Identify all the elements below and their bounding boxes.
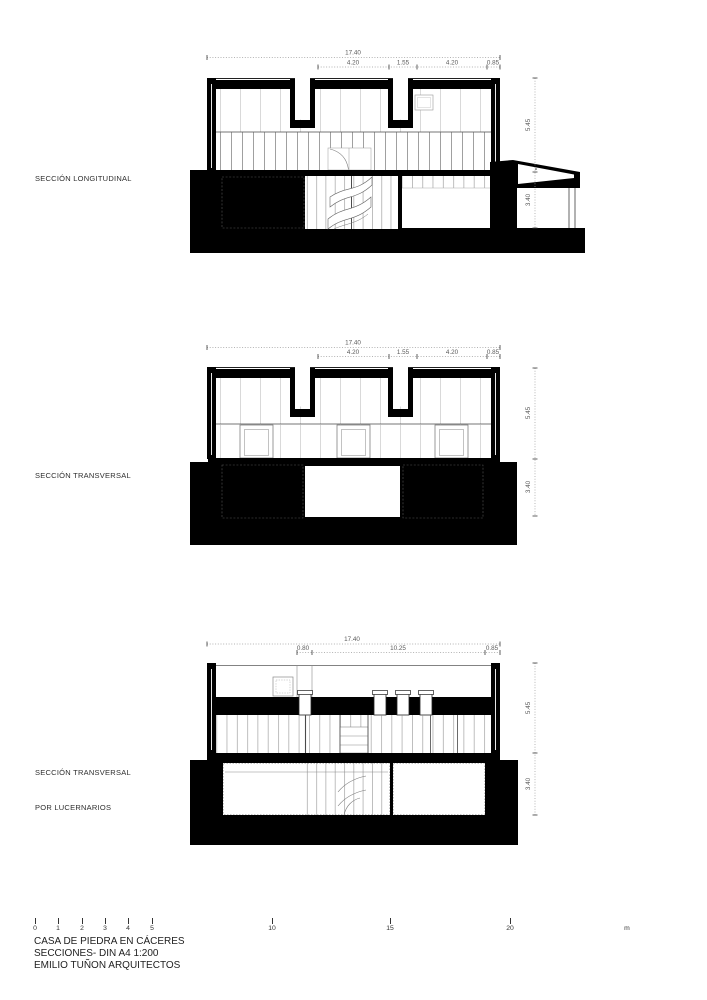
basement-room-right (402, 176, 490, 228)
roof-slab (216, 369, 491, 378)
scale-tick (152, 918, 153, 924)
skylight-cylinder-1 (298, 691, 313, 716)
scale-tick (510, 918, 511, 924)
roof-channel-1 (290, 78, 315, 129)
stair-well (305, 176, 398, 229)
channel-slot (393, 78, 408, 120)
dim-label: 17.40 (345, 50, 361, 57)
dimension-row-total: 17.40 (207, 636, 500, 647)
skylight-cylinder-4 (419, 691, 434, 716)
sections-drawing-svg: 17.40 4.20 1.55 4.20 0.85 (0, 0, 707, 1000)
channel-base (290, 409, 315, 417)
scale-tick (35, 918, 36, 924)
architect-name: EMILIO TUÑON ARQUITECTOS (34, 960, 185, 972)
dim-label: 4.20 (446, 60, 459, 67)
skylight-box (273, 677, 293, 696)
roof-slab (216, 80, 491, 89)
dim-label: 1.55 (397, 349, 410, 356)
dimension-row-total: 17.40 (207, 50, 500, 61)
dim-label: 0.85 (487, 60, 500, 67)
scale-unit-label: m (619, 925, 635, 932)
scale-tick-label: 15 (382, 925, 398, 932)
section-lucernarios-drawing: 17.40 0.80 10.25 0.85 (190, 636, 538, 845)
channel-base (290, 120, 315, 128)
foundation-extension (517, 228, 585, 253)
wall-panel-hatch (216, 378, 491, 424)
stair-zone-hatch (305, 763, 387, 815)
roof-slab (216, 697, 491, 715)
scale-tick-label: 0 (27, 925, 43, 932)
roof-channel-1 (290, 367, 315, 418)
scale-tick-label: 1 (50, 925, 66, 932)
scale-tick (105, 918, 106, 924)
project-title: CASA DE PIEDRA EN CÁCERES (34, 936, 185, 948)
dim-label: 3.40 (525, 480, 532, 493)
scale-tick (58, 918, 59, 924)
height-dimensions: 5.45 3.40 (525, 663, 538, 815)
roof-channel-2 (388, 367, 413, 418)
dim-label: 5.45 (525, 406, 532, 419)
dim-label: 3.40 (525, 777, 532, 790)
roof-channel-2 (388, 78, 413, 129)
scale-tick-label: 2 (74, 925, 90, 932)
right-wall (491, 78, 500, 172)
window-1 (240, 425, 273, 458)
height-dimensions: 5.45 3.40 (525, 78, 538, 228)
channel-base (388, 120, 413, 128)
scale-tick-label: 10 (264, 925, 280, 932)
channel-slot (295, 367, 310, 407)
drawing-sheet: SECCIÓN LONGITUDINAL SECCIÓN TRANSVERSAL… (0, 0, 707, 1000)
dim-label: 17.40 (344, 636, 360, 643)
dim-label: 4.20 (446, 349, 459, 356)
left-wall (207, 367, 216, 459)
facade-panel-hatch (216, 89, 491, 132)
scale-tick-label: 5 (144, 925, 160, 932)
dim-label: 5.45 (525, 701, 532, 714)
scale-tick-label: 3 (97, 925, 113, 932)
wall-detail-box (415, 95, 433, 110)
scale-tick-label: 20 (502, 925, 518, 932)
section-transversal-drawing: 17.40 4.20 1.55 4.20 0.85 (190, 340, 538, 546)
window-2 (337, 425, 370, 458)
dim-label: 4.20 (347, 349, 360, 356)
dim-label: 0.85 (487, 349, 500, 356)
scale-tick (272, 918, 273, 924)
right-wall (491, 367, 500, 459)
basement-room-left (223, 763, 390, 815)
scale-tick (128, 918, 129, 924)
title-block: CASA DE PIEDRA EN CÁCERES SECCIONES- DIN… (34, 936, 185, 971)
basement-hall (305, 466, 400, 517)
skylight-cylinder-3 (396, 691, 411, 716)
dim-label: 1.55 (397, 60, 410, 67)
scale-tick-label: 4 (120, 925, 136, 932)
section-longitudinal-drawing: 17.40 4.20 1.55 4.20 0.85 (190, 50, 585, 254)
dimension-row-sub: 0.80 10.25 0.85 (297, 645, 500, 655)
dim-label: 5.45 (525, 118, 532, 131)
scale-bar: 0 1 2 3 4 5 10 15 20 m (0, 916, 707, 936)
left-wall (207, 663, 216, 753)
entry-door (328, 148, 371, 170)
scale-tick (82, 918, 83, 924)
dim-label: 17.40 (345, 340, 361, 347)
scale-tick (390, 918, 391, 924)
dim-label: 3.40 (525, 193, 532, 206)
dim-label: 4.20 (347, 60, 360, 67)
dimension-row-sub: 4.20 1.55 4.20 0.85 (318, 349, 500, 359)
sheet-title: SECCIONES- DIN A4 1:200 (34, 948, 185, 960)
window-3 (435, 425, 468, 458)
ground-slab (207, 753, 500, 760)
dim-label: 0.80 (297, 645, 310, 652)
left-wall (207, 78, 216, 172)
dim-label: 10.25 (390, 645, 406, 652)
dim-label: 0.85 (486, 645, 499, 652)
basement-room-right (393, 763, 485, 815)
channel-base (388, 409, 413, 417)
height-dimensions: 5.45 3.40 (525, 368, 538, 516)
channel-slot (393, 367, 408, 407)
dimension-row-sub: 4.20 1.55 4.20 0.85 (318, 60, 500, 70)
right-wall (491, 663, 500, 753)
skylight-cylinder-2 (373, 691, 388, 716)
channel-slot (295, 78, 310, 120)
